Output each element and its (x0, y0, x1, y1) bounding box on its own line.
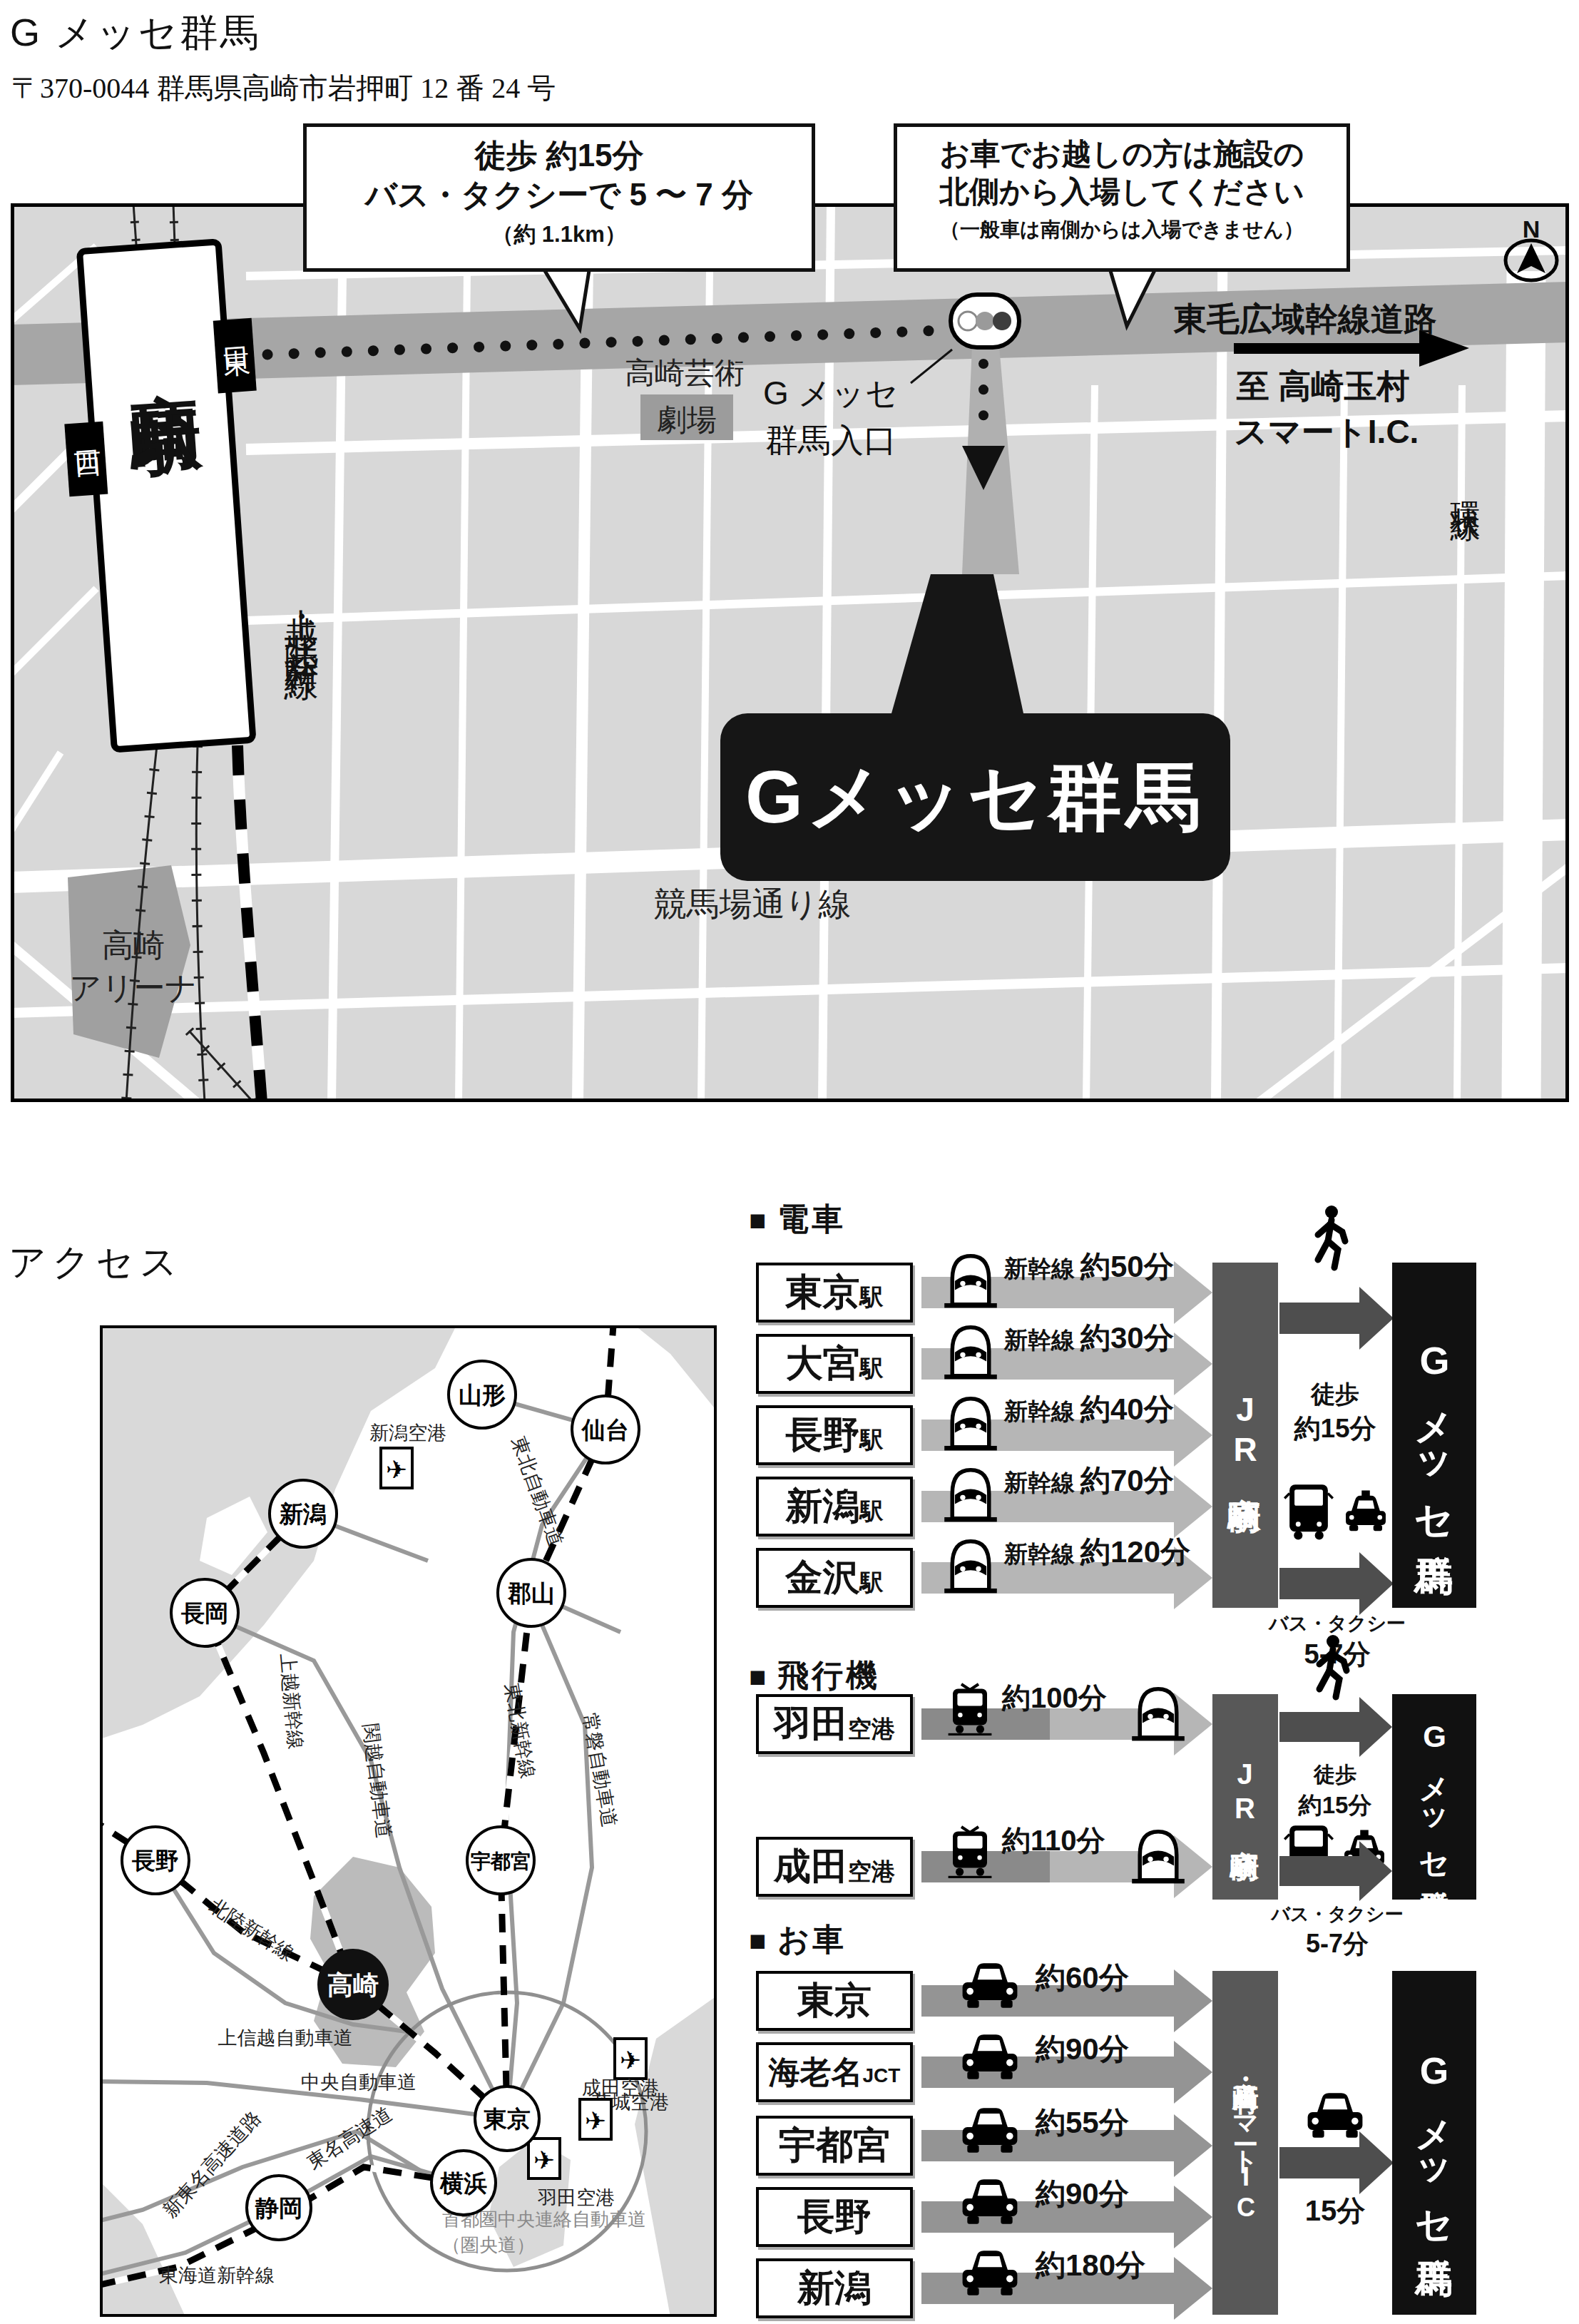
train-origin-box: 新潟駅 (756, 1477, 913, 1536)
car-origin-box: 東京 (756, 1971, 913, 2031)
callout-car-line2: 北側から入場してください (897, 173, 1347, 211)
gmesse-bar: Gメッセ群馬 (1392, 1971, 1476, 2315)
car-transfer-time: 15分 (1278, 2191, 1392, 2231)
section-marker-icon: ■ (749, 1925, 769, 1956)
venue-label: Gメッセ群馬 (745, 755, 1205, 838)
svg-text:上信越自動車道: 上信越自動車道 (218, 2027, 353, 2049)
train-origin-box: 東京駅 (756, 1263, 913, 1322)
shinkansen-icon (938, 1317, 1003, 1385)
car-section-header: ■お車 (749, 1919, 847, 1961)
taxi-icon (1339, 1485, 1392, 1548)
svg-text:✈: ✈ (533, 2146, 555, 2175)
ibaraki-airport-icon: ✈ (615, 2039, 646, 2079)
narita-airport-label: 成田空港 (582, 2077, 659, 2099)
svg-text:✈: ✈ (386, 1455, 407, 1484)
train-icon (941, 1674, 998, 1743)
train-origin-box: 長野駅 (756, 1405, 913, 1465)
access-heading: アクセス (9, 1238, 183, 1288)
west-exit-badge (64, 422, 108, 497)
svg-text:横浜: 横浜 (439, 2170, 487, 2196)
entrance-label-line1: G メッセ (763, 374, 899, 412)
entrance-label-line2: 群馬入口 (765, 422, 896, 459)
narita-airport-icon: ✈ (580, 2099, 611, 2139)
regional-map: 東北自動車道 上越新幹線 関越自動車道 東北新幹線 常磐自動車道 北陸新幹線 上… (100, 1325, 717, 2317)
page: { "page": { "title": "G メッセ群馬", "address… (0, 0, 1579, 2324)
car-icon (956, 2173, 1024, 2231)
svg-text:東京: 東京 (483, 2106, 531, 2132)
svg-text:新潟: 新潟 (279, 1501, 327, 1527)
car-icon (956, 1957, 1024, 2015)
car-icon (956, 2028, 1024, 2086)
svg-text:長岡: 長岡 (180, 1600, 228, 1626)
page-title: G メッセ群馬 (10, 7, 261, 59)
train-origin-box: 金沢駅 (756, 1548, 913, 1608)
section-marker-icon: ■ (749, 1661, 769, 1692)
street-map: 東毛広域幹線道路 高崎芸術 劇場 高崎 アリーナ 上越・北陸新幹線 高崎駅 東口… (11, 203, 1569, 1102)
compass-n: N (1523, 215, 1540, 243)
svg-text:（圏央道）: （圏央道） (442, 2234, 535, 2256)
keiba-road-label: 競馬場通り線 (653, 885, 851, 922)
svg-text:長野: 長野 (131, 1848, 179, 1874)
car-origin-box: 新潟 (756, 2258, 913, 2318)
callout-car-line1: お車でお越しの方は施設の (897, 136, 1347, 173)
shinkansen-icon (938, 1245, 1003, 1314)
niigata-airport-icon: ✈ (381, 1448, 412, 1488)
callout-car-line3: （一般車は南側からは入場できません） (897, 216, 1347, 243)
jr-takasaki-bar: JR高崎駅 (1212, 1694, 1278, 1900)
gmesse-bar: Gメッセ群馬 (1392, 1263, 1476, 1608)
takasaki-marker: 高崎 (317, 1949, 389, 2020)
callout-walk-line1: 徒歩 約15分 (307, 136, 812, 175)
theater-label-line1: 高崎芸術 (625, 356, 745, 389)
walk-time-label: 徒歩約15分 (1278, 1760, 1392, 1822)
shinkansen-icon (1125, 1678, 1191, 1747)
walk-arrow (1279, 1712, 1359, 1742)
svg-text:仙台: 仙台 (581, 1417, 629, 1443)
shinkansen-icon (1125, 1821, 1191, 1890)
train-icon (941, 1817, 998, 1885)
shinkansen-icon (938, 1459, 1003, 1528)
plane-origin-box: 成田空港 (756, 1837, 913, 1897)
train-origin-box: 大宮駅 (756, 1334, 913, 1394)
svg-text:✈: ✈ (620, 2046, 641, 2075)
haneda-airport-icon: ✈ (528, 2139, 560, 2178)
theater-label-line2: 劇場 (657, 403, 717, 437)
svg-text:静岡: 静岡 (255, 2195, 302, 2221)
car-icon (956, 2101, 1024, 2160)
bus-taxi-arrow (1279, 1856, 1359, 1886)
svg-text:東海道新幹線: 東海道新幹線 (159, 2265, 275, 2286)
main-road-label: 東毛広域幹線道路 (1173, 300, 1436, 337)
plane-section-header: ■飛行機 (749, 1655, 880, 1697)
car-origin-box: 海老名JCT (756, 2042, 913, 2102)
plane-origin-box: 羽田空港 (756, 1694, 913, 1754)
walking-person-icon (1304, 1204, 1355, 1275)
callout-walk-line3: （約 1.1km） (307, 220, 812, 250)
to-ic-label-line1: 至 高崎玉村 (1237, 367, 1410, 404)
walk-time-label: 徒歩約15分 (1278, 1378, 1392, 1447)
car-origin-box: 宇都宮 (756, 2116, 913, 2176)
callout-car-notice: お車でお越しの方は施設の 北側から入場してください （一般車は南側からは入場でき… (894, 123, 1350, 272)
east-exit-badge (213, 318, 257, 394)
haneda-airport-label: 羽田空港 (538, 2187, 615, 2208)
callout-walk-time: 徒歩 約15分 バス・タクシーで 5 〜 7 分 （約 1.1km） (303, 123, 815, 272)
bus-taxi-arrow (1279, 1568, 1359, 1599)
gmesse-bar: Gメッセ群馬 (1392, 1694, 1476, 1900)
walking-person-icon (1305, 1634, 1356, 1704)
train-section-header: ■電車 (749, 1198, 846, 1240)
svg-text:山形: 山形 (459, 1382, 506, 1408)
jr-takasaki-bar: JR高崎駅 (1212, 1263, 1278, 1608)
traffic-light-icon (951, 295, 1019, 347)
svg-text:郡山: 郡山 (507, 1580, 555, 1606)
car-icon (956, 2244, 1024, 2303)
bus-taxi-time-label: バス・タクシー5-7分 (1262, 1902, 1412, 1962)
car-origin-box: 長野 (756, 2187, 913, 2247)
bus-icon (1281, 1475, 1337, 1546)
smart-ic-bar: 高崎・玉村スマートIC (1212, 1971, 1278, 2315)
svg-text:宇都宮: 宇都宮 (471, 1850, 531, 1872)
svg-text:中央自動車道: 中央自動車道 (301, 2071, 417, 2093)
to-ic-label-line2: スマートI.C. (1235, 413, 1419, 450)
shinkansen-icon (938, 1388, 1003, 1457)
walk-arrow (1279, 1303, 1359, 1334)
callout-walk-line2: バス・タクシーで 5 〜 7 分 (307, 175, 812, 214)
shinkansen-icon (938, 1531, 1003, 1599)
page-address: 〒370-0044 群馬県高崎市岩押町 12 番 24 号 (11, 68, 556, 108)
niigata-airport-label: 新潟空港 (369, 1422, 446, 1444)
svg-text:高崎: 高崎 (327, 1970, 379, 1999)
svg-text:✈: ✈ (585, 2106, 606, 2136)
car-transfer-arrow (1279, 2147, 1359, 2178)
section-marker-icon: ■ (749, 1204, 769, 1235)
